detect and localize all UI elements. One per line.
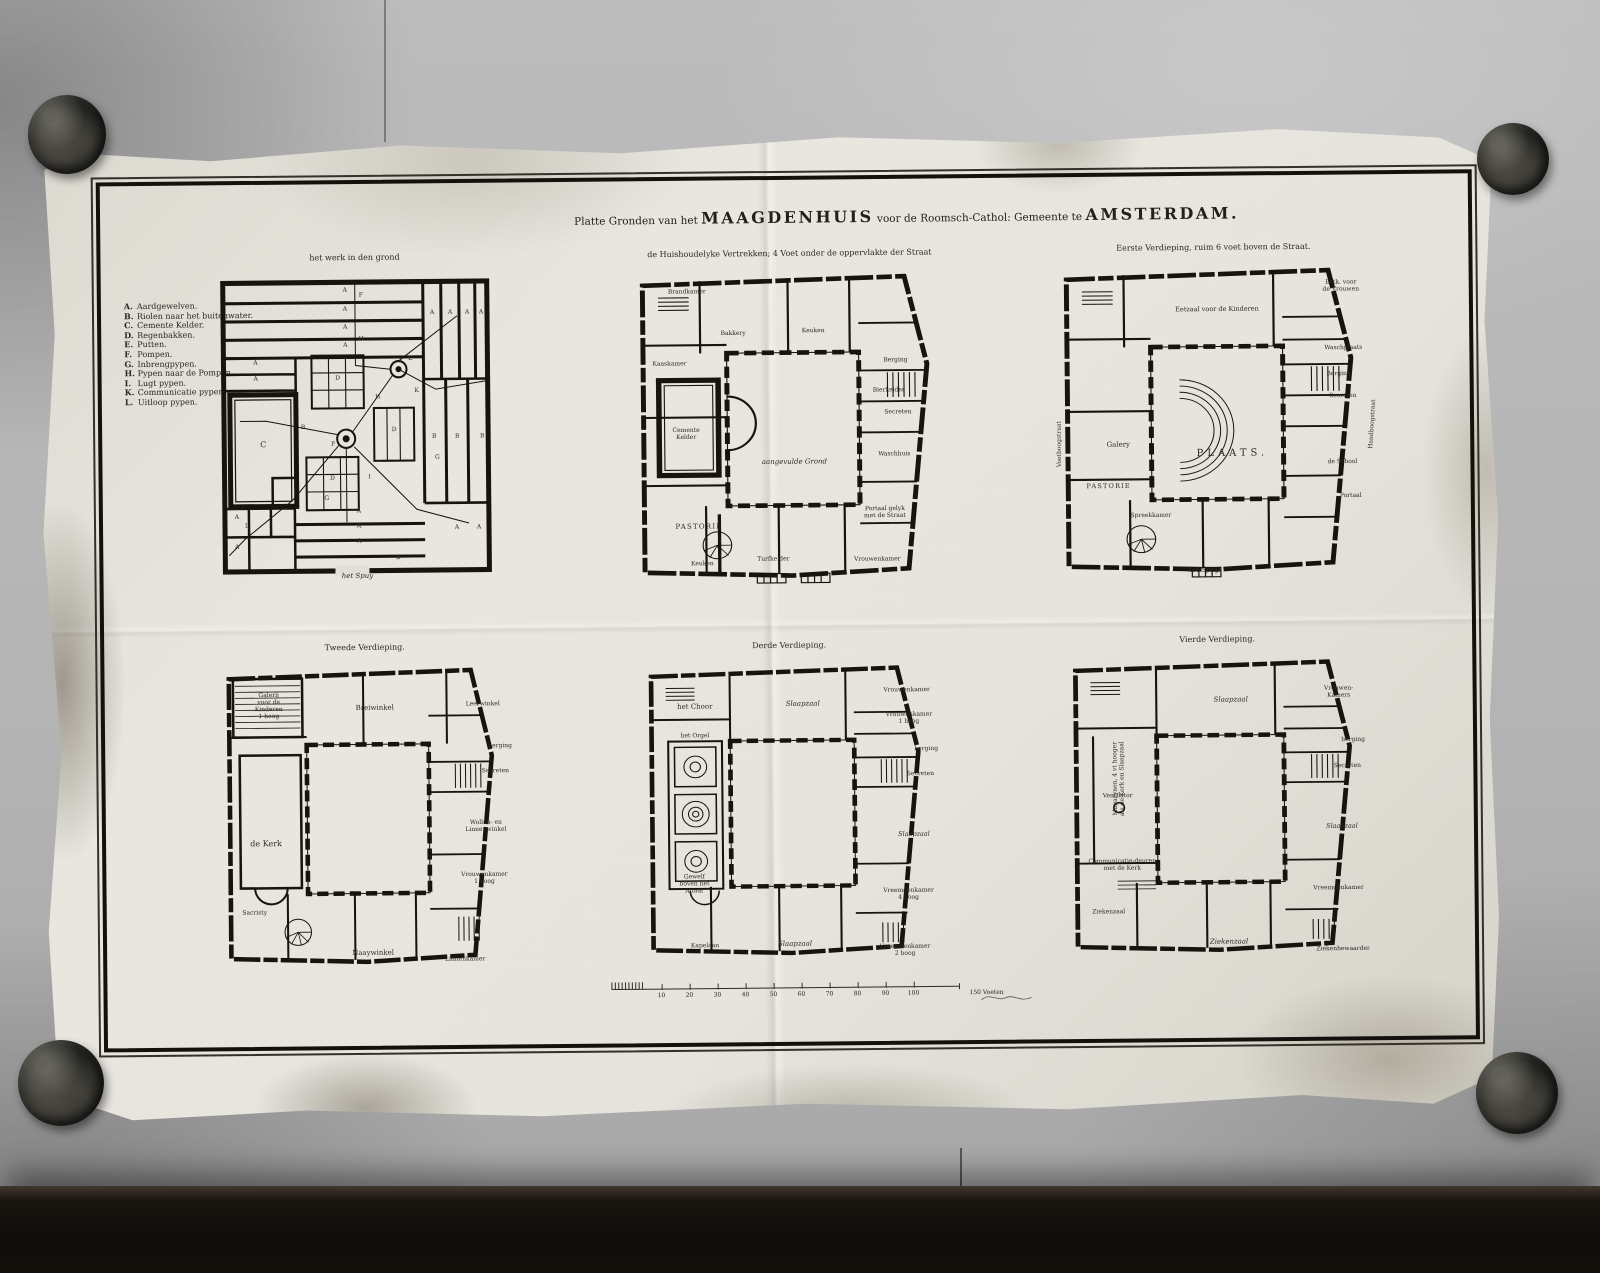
plan-second-floor: Tweede Verdieping. <box>212 656 520 971</box>
floor-plan-drawing <box>212 656 520 971</box>
title-prefix: Platte Gronden van het <box>574 215 698 228</box>
plan-basement: de Huishoudelyke Vertrekken; 4 Voet onde… <box>625 262 958 585</box>
plan-fourth-floor: Vierde Verdieping. Ma <box>1058 648 1379 959</box>
pin-top-right <box>1477 123 1549 195</box>
scale-tick-label: 80 <box>854 990 862 997</box>
floor-plan-drawing <box>1048 256 1381 579</box>
photograph-of-floorplans: Platte Gronden van het MAAGDENHUIS voor … <box>0 0 1600 1273</box>
pin-top-left <box>28 95 106 174</box>
table-edge <box>0 1186 1600 1273</box>
scale-tick-label: 90 <box>882 990 890 997</box>
scale-tick-label: 20 <box>686 992 694 999</box>
scale-tick-label: 30 <box>714 991 722 998</box>
scale-tick-label: 60 <box>798 991 806 998</box>
title-city: AMSTERDAM. <box>1085 203 1239 223</box>
drawing-sheet: Platte Gronden van het MAAGDENHUIS voor … <box>35 121 1506 1131</box>
pin-bottom-right <box>1476 1052 1558 1134</box>
scale-end-label: 150 Voeten <box>969 989 1003 996</box>
title-building-name: MAAGDENHUIS <box>701 207 874 228</box>
scale-tick-label: 100 <box>908 990 920 997</box>
pin-bottom-left <box>18 1040 104 1126</box>
scale-tick-label: 10 <box>658 992 666 999</box>
floor-plan-drawing <box>625 262 958 585</box>
floor-plan-drawing <box>205 267 508 585</box>
floor-plan-drawing <box>634 654 947 962</box>
plan-first-floor: Eerste Verdieping, ruim 6 voet boven de … <box>1048 256 1381 579</box>
scale-tick-label: 40 <box>742 991 750 998</box>
scale-tick-label: 70 <box>826 990 834 997</box>
title-middle: voor de Roomsch-Cathol: Gemeente te <box>877 211 1082 225</box>
floor-plan-drawing <box>1058 648 1379 959</box>
plan-groundwork: het werk in den grond <box>205 267 508 585</box>
wall-seam-top <box>384 0 386 142</box>
scale-tick-label: 50 <box>770 991 778 998</box>
scale-bar: 150 Voeten 102030405060708090100 <box>603 975 1043 1021</box>
plan-third-floor: Derde Verdieping. <box>634 654 947 962</box>
